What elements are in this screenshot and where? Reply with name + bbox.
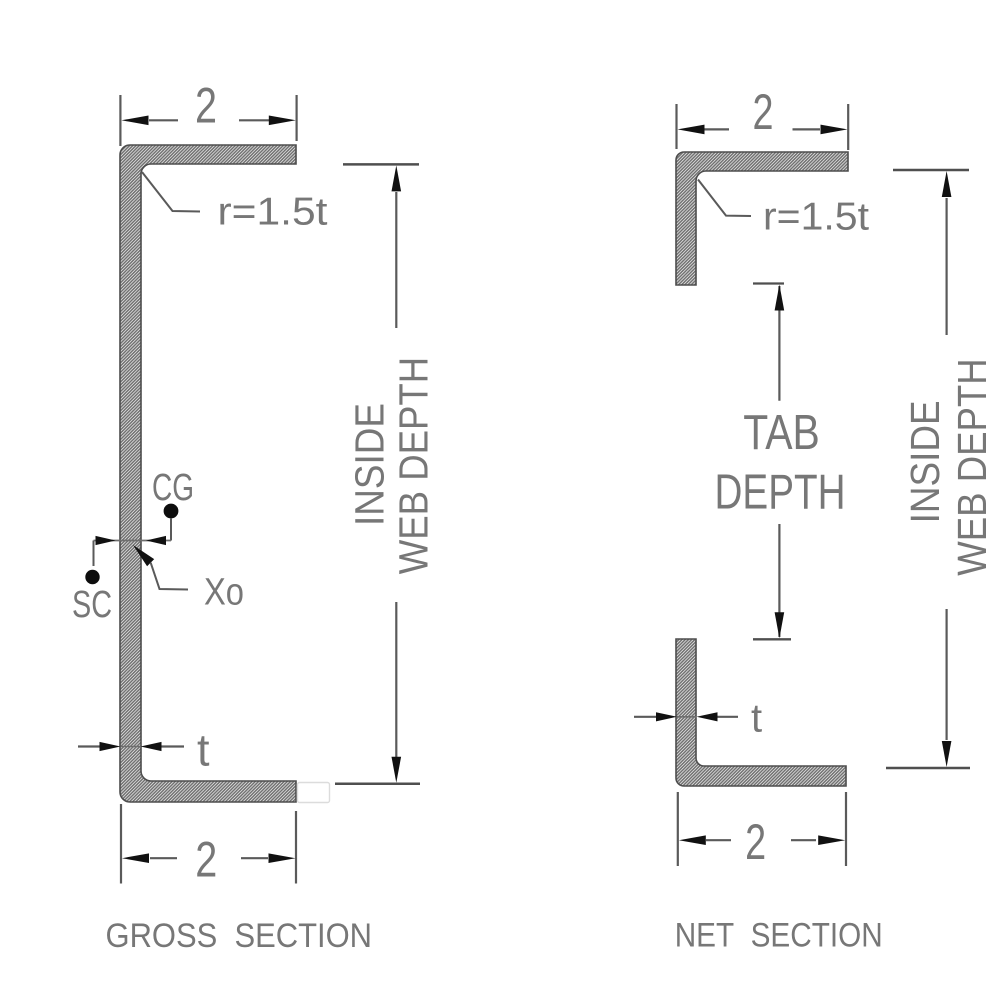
svg-text:2: 2 (745, 814, 766, 870)
svg-text:Xo: Xo (204, 572, 244, 614)
svg-text:SC: SC (72, 584, 112, 626)
svg-text:WEB DEPTH: WEB DEPTH (391, 357, 437, 575)
svg-text:DEPTH: DEPTH (715, 465, 846, 519)
svg-text:WEB DEPTH: WEB DEPTH (949, 358, 995, 576)
svg-text:t: t (197, 725, 210, 776)
svg-text:CG: CG (152, 467, 194, 509)
svg-text:TAB: TAB (743, 406, 820, 460)
svg-text:GROSS SECTION: GROSS SECTION (106, 917, 373, 955)
svg-text:r=1.5t: r=1.5t (218, 191, 328, 234)
svg-text:INSIDE: INSIDE (902, 400, 948, 523)
svg-text:NET SECTION: NET SECTION (675, 917, 883, 955)
svg-text:2: 2 (195, 77, 217, 133)
svg-text:t: t (751, 697, 762, 741)
svg-text:2: 2 (195, 832, 217, 888)
svg-text:2: 2 (753, 84, 774, 140)
svg-text:INSIDE: INSIDE (346, 403, 392, 526)
svg-text:r=1.5t: r=1.5t (763, 196, 869, 239)
